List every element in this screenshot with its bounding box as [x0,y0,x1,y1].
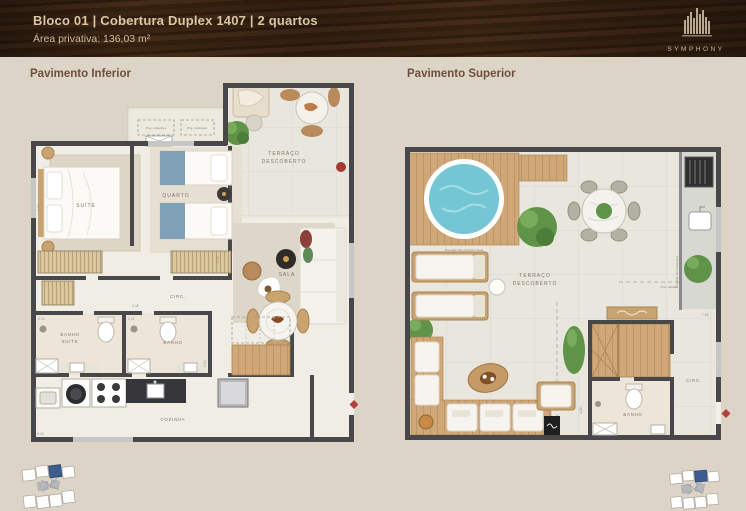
plant-icon [684,255,712,283]
annotation-proj-b: Proj. cobertura [187,126,208,130]
symphony-logo-icon [660,6,732,40]
shower-head [40,326,47,333]
dimension-label: 2.49 [132,304,139,308]
terrace-chair [301,125,323,137]
dimension-label: 5.44 [37,432,44,436]
dimension-label: 2.21 [128,317,135,321]
room-label-cozinha: COZINHA [161,417,186,422]
room-label-banho-suite-1: BANHO [60,332,79,337]
sink [184,363,197,372]
toilet [160,322,176,342]
grill [685,157,713,187]
pillow [47,205,62,232]
stairs [592,324,670,377]
pillow-red [300,230,312,248]
annotation-grill: Previsão churrasqueira [675,256,679,288]
room-label-terraco-2: DESCOBERTO [262,159,307,165]
private-area-text: Área privativa: 136,03 m² [33,33,150,45]
plan-title-superior: Pavimento Superior [407,68,516,80]
header-bar: Bloco 01 | Cobertura Duplex 1407 | 2 qua… [0,0,746,57]
dimension-label: 1.50 [203,360,207,367]
room-label-suite: SUÍTE [76,202,96,209]
pillow [47,172,62,199]
dimension-label: 7.85 [702,313,709,317]
nightstand [42,147,54,159]
shower-head [595,401,601,407]
room-label-banho: BANHO [623,412,642,417]
bed-throw [160,203,185,239]
annotation-proj-a: Proj. cobertura [146,126,167,130]
entry-marker-icon [722,409,731,418]
sink [70,363,84,372]
red-flower-decor [336,162,346,172]
dimension-label: 2.63 [328,90,335,94]
plan-title-inferior: Pavimento Inferior [30,68,131,80]
bar-sink [689,212,711,230]
floorplan-inferior: SUÍTE QUARTO TERRAÇO DESCOBERTO SALA CIR… [28,83,358,448]
dimension-label: 3.35 [37,204,41,211]
dimension-label: 4.55 [579,407,583,414]
page-title: Bloco 01 | Cobertura Duplex 1407 | 2 qua… [33,13,318,28]
room-label-quarto: QUARTO [162,193,189,199]
brand-name: SYMPHONY [660,46,732,53]
floorplan-superior: TERRAÇO DESCOBERTO CIRC. BANHO Previsão … [402,142,732,442]
pillow-green [303,247,313,263]
keyplan-highlighted-unit [49,465,62,478]
console-table [607,307,657,319]
pool-icon [429,164,499,234]
pillow [211,207,227,235]
pouf [246,115,262,131]
keyplan-right [666,467,728,511]
dimension-label: 2.59 [216,256,220,263]
room-label-circ: CIRC. [170,294,186,299]
service-door [716,402,721,424]
centerpiece-plant [596,203,612,219]
room-label-sala: SALA [279,272,296,278]
quarto-furniture [160,151,232,273]
toilet [98,322,114,342]
room-label-banho: BANHO [163,340,182,345]
coffee-table-wood [243,262,261,280]
suite-wardrobe [38,251,102,273]
room-label-banho-suite-2: SUÍTE [62,339,79,344]
dimension-label: 2.22 [38,317,45,321]
kitchen-sink [147,384,164,398]
annotation-deck: Previsão hid. piscina e deck [445,248,484,252]
terrace-chair [280,89,300,101]
plant-icon [225,121,249,145]
quarto-wardrobe [171,251,231,273]
shower-head [131,326,138,333]
sink [651,425,665,434]
bed-headboard [38,169,44,237]
side-table [489,279,505,295]
plant-icon [517,207,557,247]
room-label-terraco-1: TERRAÇO [519,273,550,279]
toilet [626,389,642,409]
brochure-page: Bloco 01 | Cobertura Duplex 1407 | 2 qua… [0,0,746,511]
room-label-terraco-1: TERRAÇO [268,151,299,157]
annotation-roof: Proj. telhado [661,285,679,289]
sofa-back [336,230,346,322]
brand-logo: SYMPHONY [660,6,732,52]
bed-throw [160,151,185,185]
room-label-circ: CIRC. [686,378,702,383]
room-label-terraco-2: DESCOBERTO [513,281,558,287]
pillow [211,155,227,181]
deck-step [519,155,567,181]
keyplan-highlighted-unit [694,470,707,482]
keyplan-left [18,461,82,511]
stove [92,379,126,407]
closet [42,281,74,305]
